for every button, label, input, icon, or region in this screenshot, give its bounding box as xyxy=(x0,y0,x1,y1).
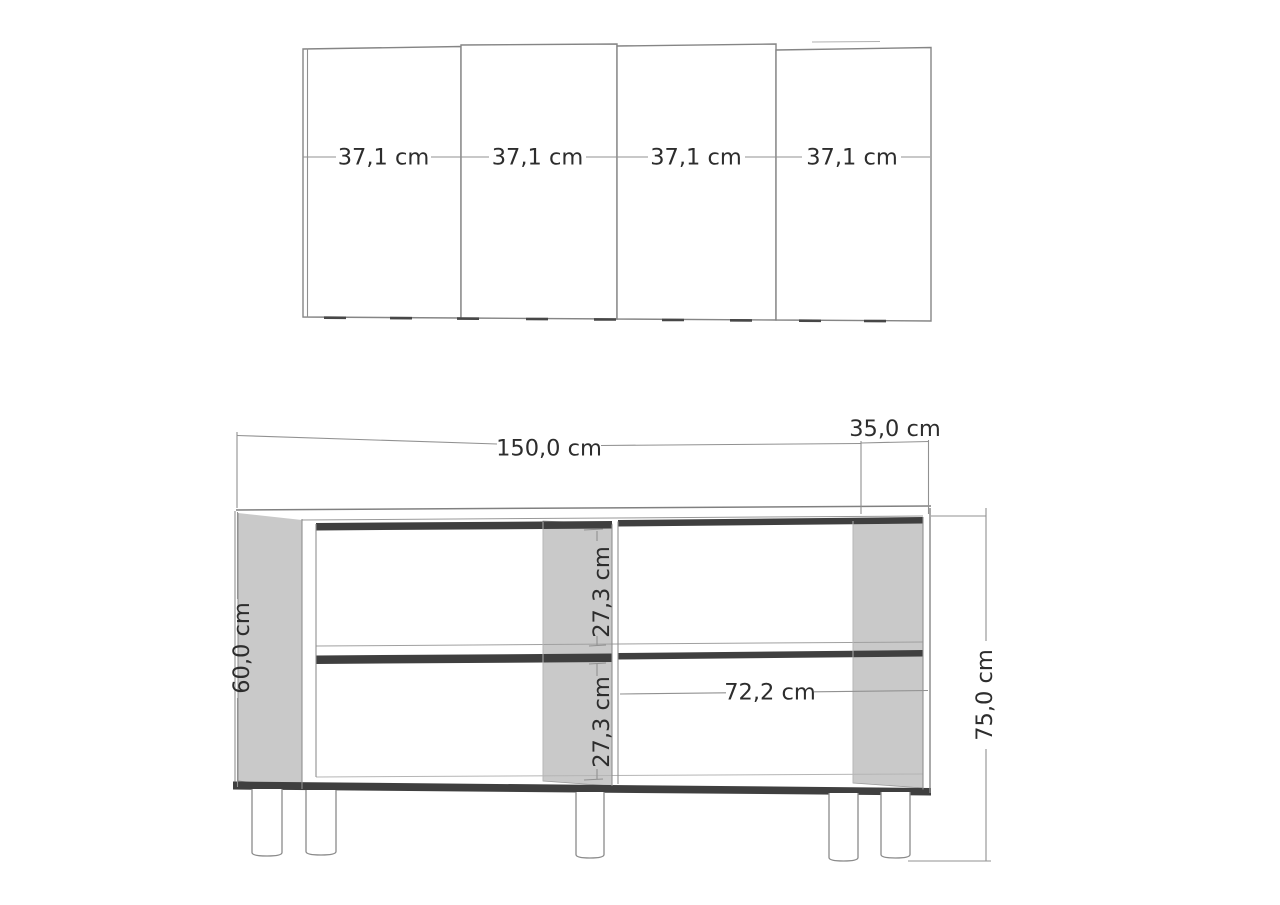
door-panel-2 xyxy=(461,44,617,319)
leg-rear-right xyxy=(829,793,858,861)
door-width-label-2: 37,1 cm xyxy=(492,145,584,171)
total-height-dimension-label: 75,0 cm xyxy=(972,649,998,741)
front-view-doors: 37,1 cm 37,1 cm 37,1 cm 37,1 cm xyxy=(303,42,931,322)
door-top-back-edge xyxy=(812,42,880,43)
inner-width-dimension-label: 72,2 cm xyxy=(724,680,816,706)
depth-dimension-label: 35,0 cm xyxy=(849,416,941,442)
furniture-dimension-drawing: 37,1 cm 37,1 cm 37,1 cm 37,1 cm xyxy=(0,0,1280,905)
door-width-label-3: 37,1 cm xyxy=(650,145,742,171)
top-compartment-height-label: 27,3 cm xyxy=(589,546,615,638)
cabinet-legs xyxy=(252,789,910,861)
cabinet-perspective-view: 150,0 cm 35,0 cm 75,0 cm 60,0 cm 27, xyxy=(229,416,998,861)
side-height-dimension-label: 60,0 cm xyxy=(229,602,255,694)
door-panel-1 xyxy=(303,47,461,319)
door-panel-3 xyxy=(617,44,776,320)
leg-rear-left xyxy=(252,789,282,856)
bottom-panel-top-edge xyxy=(316,774,923,777)
door-width-label-4: 37,1 cm xyxy=(806,145,898,171)
bottom-compartment-height-label: 27,3 cm xyxy=(589,676,615,768)
leg-front-left xyxy=(306,790,336,855)
leg-front-center xyxy=(576,792,604,858)
shelf-top-edge xyxy=(316,642,923,646)
depth-dimension xyxy=(861,440,929,514)
width-dimension-label: 150,0 cm xyxy=(496,436,602,462)
technical-drawing-page: 37,1 cm 37,1 cm 37,1 cm 37,1 cm xyxy=(0,0,1280,905)
door-width-label-1: 37,1 cm xyxy=(338,145,430,171)
door-panel-4 xyxy=(776,48,931,322)
leg-front-right xyxy=(881,792,910,858)
